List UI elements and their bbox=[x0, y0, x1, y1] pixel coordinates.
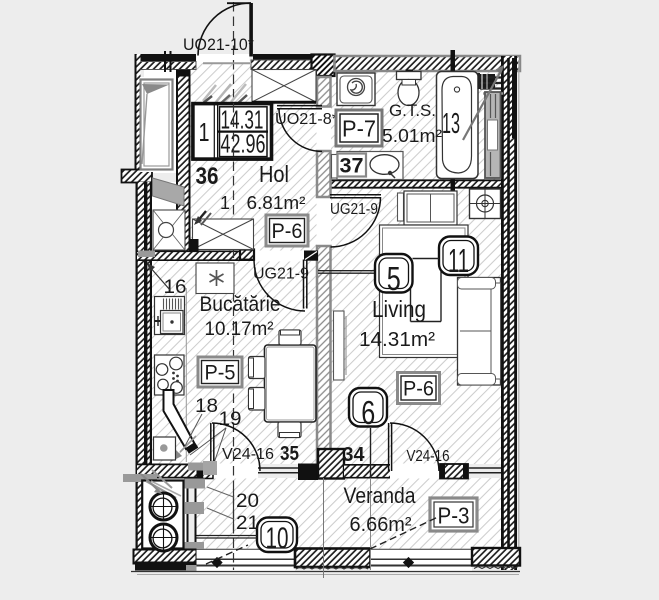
svg-text:UO21-10*: UO21-10* bbox=[183, 35, 254, 54]
svg-text:34: 34 bbox=[343, 444, 366, 466]
svg-text:5: 5 bbox=[387, 260, 401, 297]
svg-text:37: 37 bbox=[340, 155, 364, 178]
svg-text:14.31m²: 14.31m² bbox=[359, 329, 435, 351]
svg-text:UG21-9: UG21-9 bbox=[253, 266, 309, 283]
svg-text:Hol: Hol bbox=[259, 161, 289, 187]
svg-text:Veranda: Veranda bbox=[344, 483, 417, 508]
svg-text:42.96: 42.96 bbox=[221, 128, 266, 158]
svg-text:UO21-8*: UO21-8* bbox=[275, 111, 338, 128]
svg-text:6: 6 bbox=[361, 394, 375, 431]
svg-text:18: 18 bbox=[195, 396, 218, 417]
svg-text:6.81m²: 6.81m² bbox=[247, 193, 306, 213]
svg-text:P-5: P-5 bbox=[205, 362, 236, 385]
svg-text:V24-16: V24-16 bbox=[407, 448, 450, 465]
svg-text:P-3: P-3 bbox=[438, 503, 470, 529]
svg-text:1: 1 bbox=[220, 193, 230, 213]
svg-text:Living: Living bbox=[372, 296, 426, 322]
svg-text:Bucătărie: Bucătărie bbox=[200, 293, 281, 316]
svg-text:P-6: P-6 bbox=[403, 378, 434, 401]
svg-text:21: 21 bbox=[236, 513, 259, 534]
svg-text:1: 1 bbox=[199, 117, 210, 147]
svg-text:P-6: P-6 bbox=[272, 220, 303, 243]
svg-text:V24-16: V24-16 bbox=[222, 446, 274, 463]
svg-text:10.17m²: 10.17m² bbox=[205, 319, 274, 340]
svg-text:35: 35 bbox=[280, 443, 299, 465]
svg-text:16: 16 bbox=[164, 277, 187, 298]
svg-text:G.T.S.: G.T.S. bbox=[389, 101, 436, 120]
svg-text:36: 36 bbox=[196, 163, 219, 190]
svg-text:6.66m²: 6.66m² bbox=[350, 514, 412, 536]
svg-text:5.01m²: 5.01m² bbox=[382, 126, 442, 146]
svg-text:UG21-9: UG21-9 bbox=[330, 201, 378, 218]
svg-text:20: 20 bbox=[236, 491, 259, 512]
svg-text:P-7: P-7 bbox=[342, 116, 376, 142]
svg-text:13: 13 bbox=[442, 108, 460, 140]
svg-text:11: 11 bbox=[448, 242, 469, 279]
svg-text:10: 10 bbox=[266, 522, 289, 555]
